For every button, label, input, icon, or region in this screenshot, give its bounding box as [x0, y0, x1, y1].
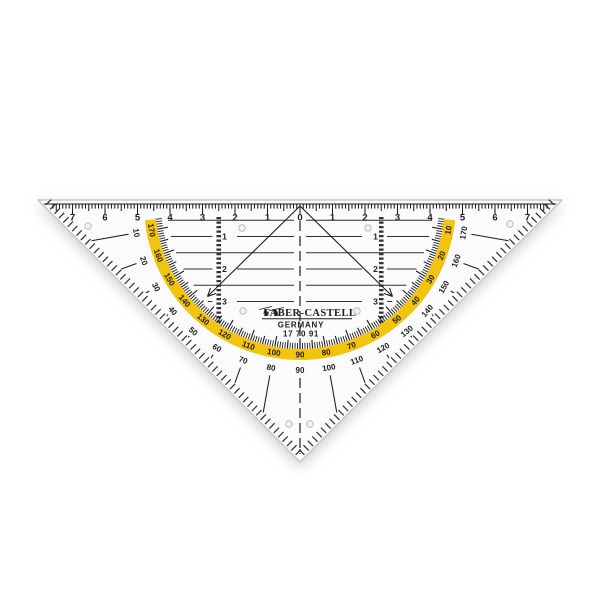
hole [85, 223, 91, 229]
cm-label: 4 [427, 213, 433, 224]
cm-label: 1 [330, 213, 336, 224]
depth-label: 1 [373, 232, 378, 242]
cm-label: 2 [232, 213, 237, 224]
cm-label: 6 [492, 213, 497, 224]
cm-label: 7 [525, 213, 530, 224]
brand-name: FABER-CASTELL [264, 308, 357, 319]
hole [354, 308, 360, 314]
cm-label: 2 [362, 213, 367, 224]
cm-label: 1 [265, 213, 271, 224]
depth-label: 2 [222, 264, 227, 274]
hole [286, 421, 292, 427]
geo-triangle-set-square: 1122331701601501401301201101009080706050… [0, 0, 600, 600]
hole [240, 308, 246, 314]
depth-label: 2 [373, 264, 378, 274]
article-number: 17 70 91 [283, 330, 319, 339]
cm-label: 3 [395, 213, 400, 224]
inner-degree-label: 90 [296, 350, 305, 359]
ruler-numbers: 765432101234567 [70, 213, 530, 224]
cm-label: 5 [135, 213, 141, 224]
hole [239, 225, 245, 231]
hole [307, 421, 313, 427]
cm-label: 6 [102, 213, 107, 224]
cm-label: 7 [70, 213, 75, 224]
origin-label: GERMANY [278, 321, 325, 330]
hole [365, 225, 371, 231]
depth-label: 3 [222, 297, 227, 307]
hole [507, 221, 513, 227]
cm-label: 4 [167, 213, 173, 224]
outer-degree-label: 90 [296, 366, 305, 375]
product-photo: 1122331701601501401301201101009080706050… [0, 0, 600, 600]
cm-label: 3 [200, 213, 205, 224]
cm-label: 0 [297, 213, 302, 224]
cm-label: 5 [460, 213, 466, 224]
depth-label: 3 [373, 297, 378, 307]
depth-label: 1 [222, 232, 227, 242]
